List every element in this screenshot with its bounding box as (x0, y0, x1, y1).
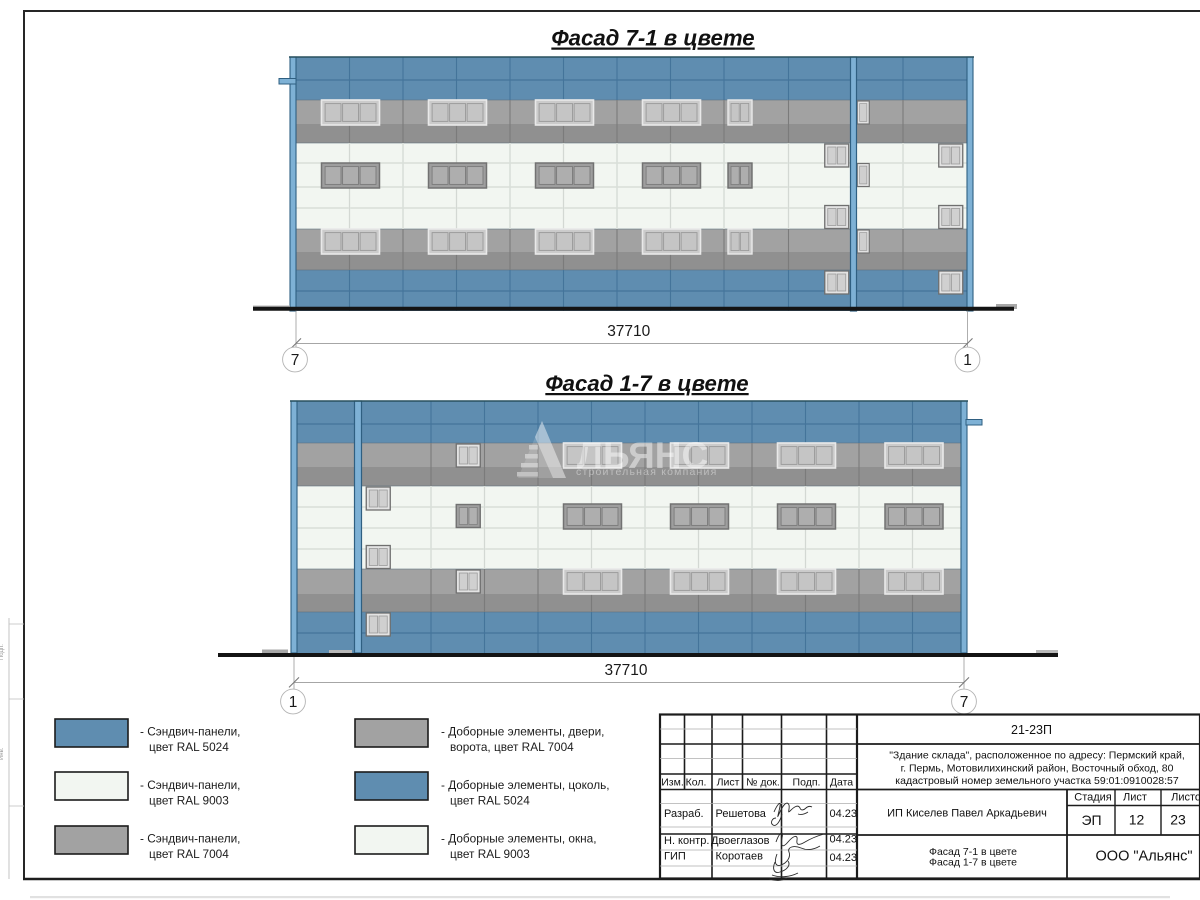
svg-text:цвет RAL 7004: цвет RAL 7004 (149, 847, 229, 861)
svg-text:Фасад 1-7 в цвете: Фасад 1-7 в цвете (929, 857, 1017, 869)
svg-text:г. Пермь, Мотовилихинский райо: г. Пермь, Мотовилихинский район, Восточн… (901, 763, 1174, 775)
svg-text:Решетова: Решетова (716, 808, 767, 820)
svg-text:7: 7 (960, 694, 969, 711)
svg-text:№ док.: № док. (746, 777, 780, 789)
svg-text:ООО "Альянс": ООО "Альянс" (1096, 849, 1193, 865)
svg-text:цвет RAL 9003: цвет RAL 9003 (149, 794, 229, 808)
svg-text:ворота, цвет RAL 7004: ворота, цвет RAL 7004 (450, 740, 574, 754)
svg-text:21-23П: 21-23П (1011, 723, 1052, 737)
svg-text:Лист: Лист (717, 777, 740, 789)
svg-text:23: 23 (1170, 812, 1186, 828)
svg-text:строительная компания: строительная компания (576, 466, 717, 478)
svg-text:- Сэндвич-панели,: - Сэндвич-панели, (140, 778, 240, 792)
svg-text:Листов: Листов (1171, 792, 1200, 804)
svg-text:Кол.: Кол. (686, 777, 707, 789)
svg-text:цвет RAL 9003: цвет RAL 9003 (450, 847, 530, 861)
svg-text:Разраб.: Разраб. (664, 808, 704, 820)
svg-text:Коротаев: Коротаев (716, 851, 764, 863)
svg-text:1: 1 (289, 694, 298, 711)
svg-text:Подп.: Подп. (793, 777, 821, 789)
svg-text:цвет RAL 5024: цвет RAL 5024 (149, 740, 229, 754)
svg-text:цвет RAL 5024: цвет RAL 5024 (450, 794, 530, 808)
svg-text:Фасад 1-7 в цвете: Фасад 1-7 в цвете (545, 371, 748, 396)
svg-text:кадастровый номер земельного у: кадастровый номер земельного участка 59:… (895, 775, 1179, 787)
svg-text:Н. контр.: Н. контр. (664, 835, 709, 847)
svg-text:ГИП: ГИП (664, 851, 686, 863)
svg-text:Инв.: Инв. (0, 747, 5, 760)
svg-text:1: 1 (963, 352, 972, 369)
svg-text:Подп.: Подп. (0, 644, 5, 660)
svg-text:37710: 37710 (607, 323, 650, 340)
svg-text:"Здание склада", расположенное: "Здание склада", расположенное по адресу… (889, 750, 1185, 762)
svg-text:ИП Киселев Павел Аркадьевич: ИП Киселев Павел Аркадьевич (887, 808, 1047, 820)
svg-text:Двоеглазов: Двоеглазов (711, 835, 770, 847)
svg-text:- Сэндвич-панели,: - Сэндвич-панели, (140, 832, 240, 846)
svg-text:Стадия: Стадия (1074, 792, 1112, 804)
svg-text:04.23: 04.23 (830, 808, 858, 820)
svg-text:Лист: Лист (1123, 792, 1147, 804)
svg-text:04.23: 04.23 (830, 852, 858, 864)
svg-text:37710: 37710 (604, 662, 647, 679)
svg-text:ЭП: ЭП (1081, 812, 1101, 828)
svg-text:- Доборные элементы, цоколь,: - Доборные элементы, цоколь, (441, 778, 610, 792)
svg-text:- Сэндвич-панели,: - Сэндвич-панели, (140, 725, 240, 739)
svg-text:Дата: Дата (830, 777, 853, 789)
svg-text:7: 7 (291, 352, 300, 369)
svg-text:12: 12 (1129, 812, 1145, 828)
svg-text:- Доборные элементы, двери,: - Доборные элементы, двери, (441, 725, 604, 739)
svg-text:04.23: 04.23 (830, 834, 858, 846)
svg-text:- Доборные элементы, окна,: - Доборные элементы, окна, (441, 832, 597, 846)
svg-text:Фасад 7-1 в цвете: Фасад 7-1 в цвете (551, 26, 754, 51)
svg-text:Изм.: Изм. (661, 777, 684, 789)
